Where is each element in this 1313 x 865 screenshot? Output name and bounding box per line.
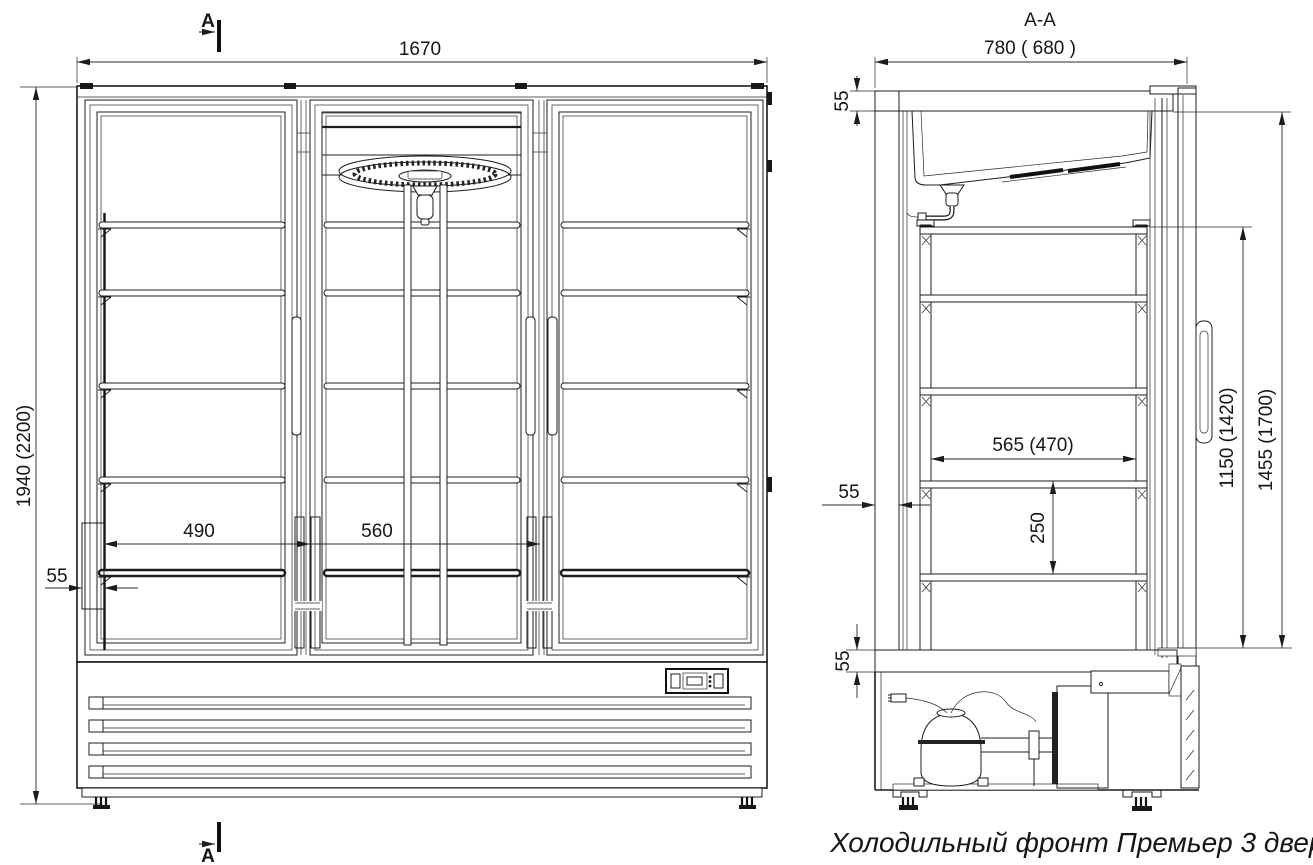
dim-top-insulation: 55	[832, 76, 875, 126]
dim-interior-height-text: 1455 (1700)	[1256, 389, 1277, 491]
plinth	[82, 788, 762, 797]
dim-shelf-pitch: 250	[1028, 481, 1053, 574]
dim-bottom-insulation: 55	[833, 624, 875, 698]
dim-interior-height: 1455 (1700)	[1173, 112, 1292, 648]
back-wall	[875, 91, 907, 650]
door-hinge-right-low	[767, 477, 772, 492]
handle-right-door[interactable]	[548, 317, 557, 435]
dim-front-wall-text: 55	[46, 566, 67, 587]
temperature-controller[interactable]	[666, 669, 728, 693]
refrigerant-pipes	[981, 731, 1057, 786]
technical-drawing: A A 1670 1940 (2200)	[0, 0, 1313, 865]
compressor	[888, 692, 1057, 786]
dim-back-wall-text: 55	[838, 482, 859, 503]
drawing-title: Холодильный фронт Премьер 3 двери.	[829, 827, 1313, 858]
dim-top-insulation-text: 55	[832, 90, 853, 111]
section-view: A-A 780 ( 680 ) 55 55	[822, 10, 1313, 858]
evaporator-tray	[907, 111, 1152, 222]
section-view-label: A-A	[1024, 10, 1056, 31]
dim-shelf-pitch-text: 250	[1028, 512, 1049, 544]
dim-rack-height-text: 1150 (1420)	[1217, 387, 1238, 488]
dim-depth: 780 ( 680 )	[875, 38, 1187, 88]
section-cut-label-bottom: A	[201, 846, 215, 865]
handle-middle-door[interactable]	[526, 317, 535, 435]
door-hinge-right-mid	[767, 160, 772, 172]
dim-front-height-text: 1940 (2200)	[14, 405, 35, 507]
cabinet-door-section	[1150, 86, 1212, 666]
door-handle-section[interactable]	[1196, 321, 1212, 443]
dim-back-wall: 55	[822, 482, 930, 505]
door-hinge-right-top	[767, 92, 772, 105]
bottom-insulation	[875, 650, 1177, 672]
section-cut-label-top: A	[201, 11, 215, 32]
handle-left-door[interactable]	[292, 317, 301, 435]
electrical-box	[1091, 671, 1169, 693]
dim-front-width-text: 1670	[399, 39, 441, 60]
section-cut-marker-top: A	[199, 11, 219, 52]
condenser	[1052, 686, 1108, 788]
dim-front-door-mid-text: 560	[361, 521, 393, 542]
dim-depth-text: 780 ( 680 )	[984, 38, 1076, 59]
machine-compartment	[875, 664, 1199, 811]
dim-shelf-depth-text: 565 (470)	[992, 435, 1073, 456]
dim-bottom-insulation-text: 55	[833, 650, 854, 671]
dim-front-door-left-text: 490	[183, 521, 215, 542]
front-view: A A 1670 1940 (2200)	[14, 11, 772, 865]
front-grille-section	[1169, 664, 1199, 788]
leveling-feet-section	[893, 790, 1161, 811]
drain-elbow	[907, 193, 958, 222]
top-insulation	[875, 91, 1173, 111]
dim-shelf-depth: 565 (470)	[931, 435, 1136, 459]
base-grille	[77, 662, 767, 797]
leveling-feet-front	[92, 797, 756, 809]
dim-front-width: 1670	[77, 39, 767, 83]
section-cut-marker-bottom: A	[199, 822, 219, 865]
